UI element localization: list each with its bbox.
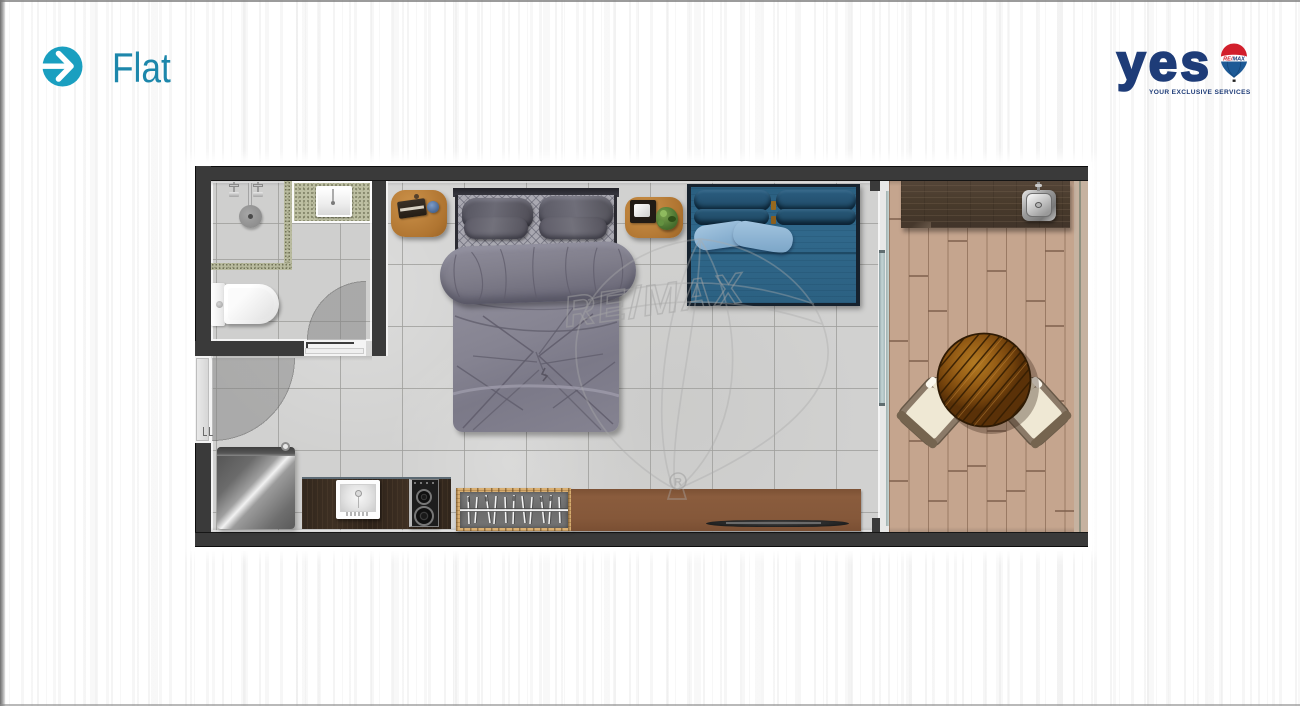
svg-text:RE/MAX: RE/MAX xyxy=(561,264,748,337)
svg-text:R: R xyxy=(674,477,682,489)
